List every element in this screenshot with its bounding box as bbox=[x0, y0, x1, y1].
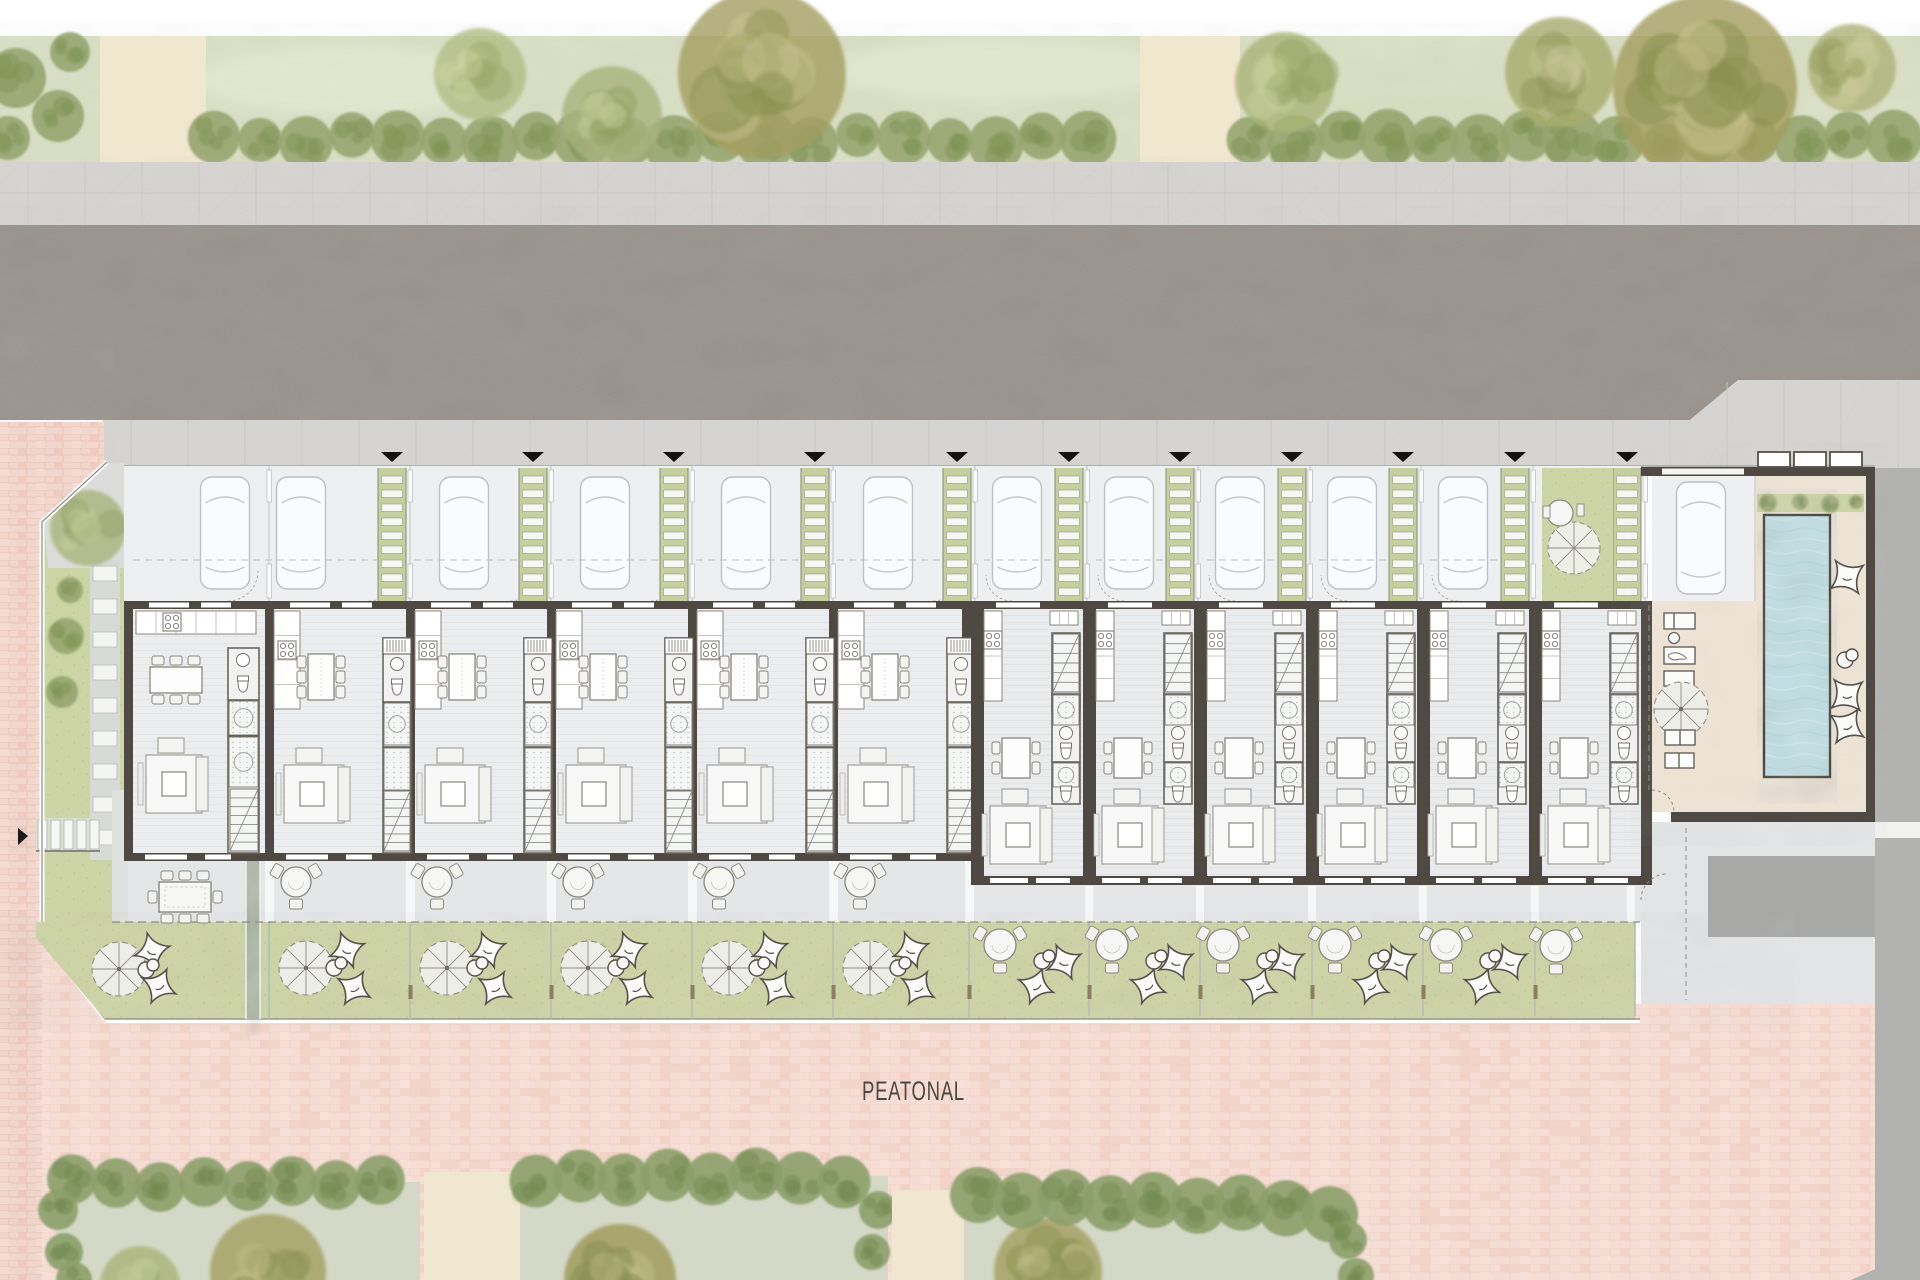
svg-text:PEATONAL: PEATONAL bbox=[862, 1076, 965, 1106]
